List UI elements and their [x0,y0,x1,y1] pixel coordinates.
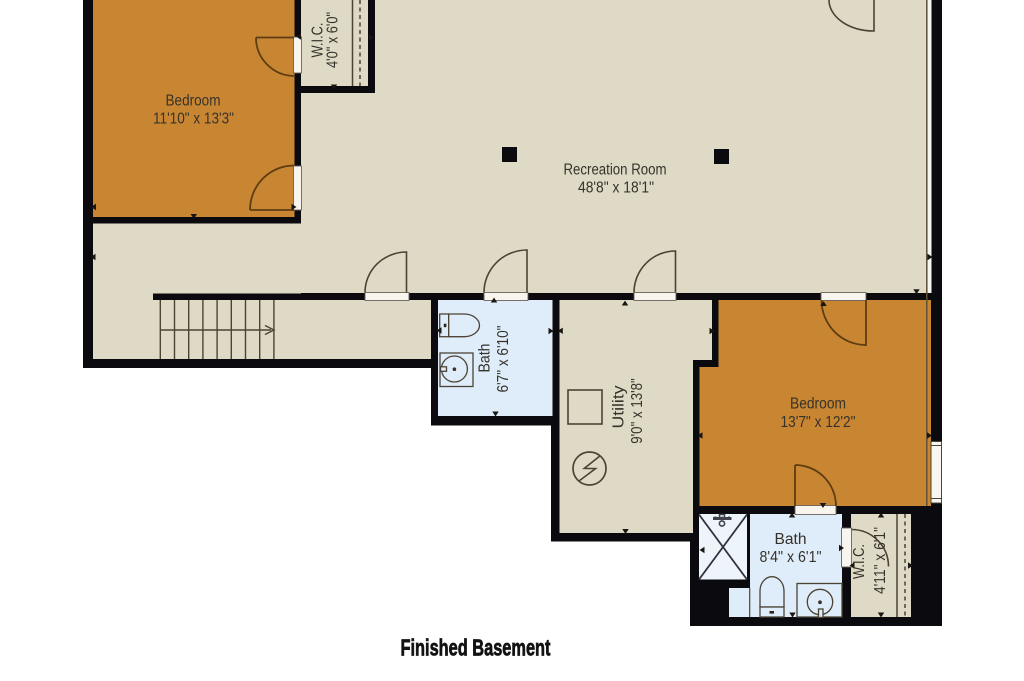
svg-text:4'0" x 6'0": 4'0" x 6'0" [325,12,342,68]
svg-text:Utility: Utility [611,385,628,428]
svg-text:Bedroom: Bedroom [790,396,846,413]
svg-text:9'0" x 13'8": 9'0" x 13'8" [629,378,646,444]
svg-text:4'11" x 6'1": 4'11" x 6'1" [872,527,889,594]
svg-text:Bath: Bath [775,531,807,548]
svg-text:8'4" x 6'1": 8'4" x 6'1" [760,549,822,566]
svg-text:48'8" x 18'1": 48'8" x 18'1" [578,180,654,197]
svg-text:W.I.C.: W.I.C. [851,544,868,579]
svg-text:6'7" x 6'10": 6'7" x 6'10" [495,326,512,393]
svg-text:Finished Basement: Finished Basement [401,635,551,661]
svg-text:Bath: Bath [477,344,494,373]
svg-text:13'7" x 12'2": 13'7" x 12'2" [781,414,856,431]
svg-text:Bedroom: Bedroom [166,93,221,110]
svg-text:11'10" x 13'3": 11'10" x 13'3" [153,111,234,128]
svg-text:Recreation Room: Recreation Room [564,162,667,179]
